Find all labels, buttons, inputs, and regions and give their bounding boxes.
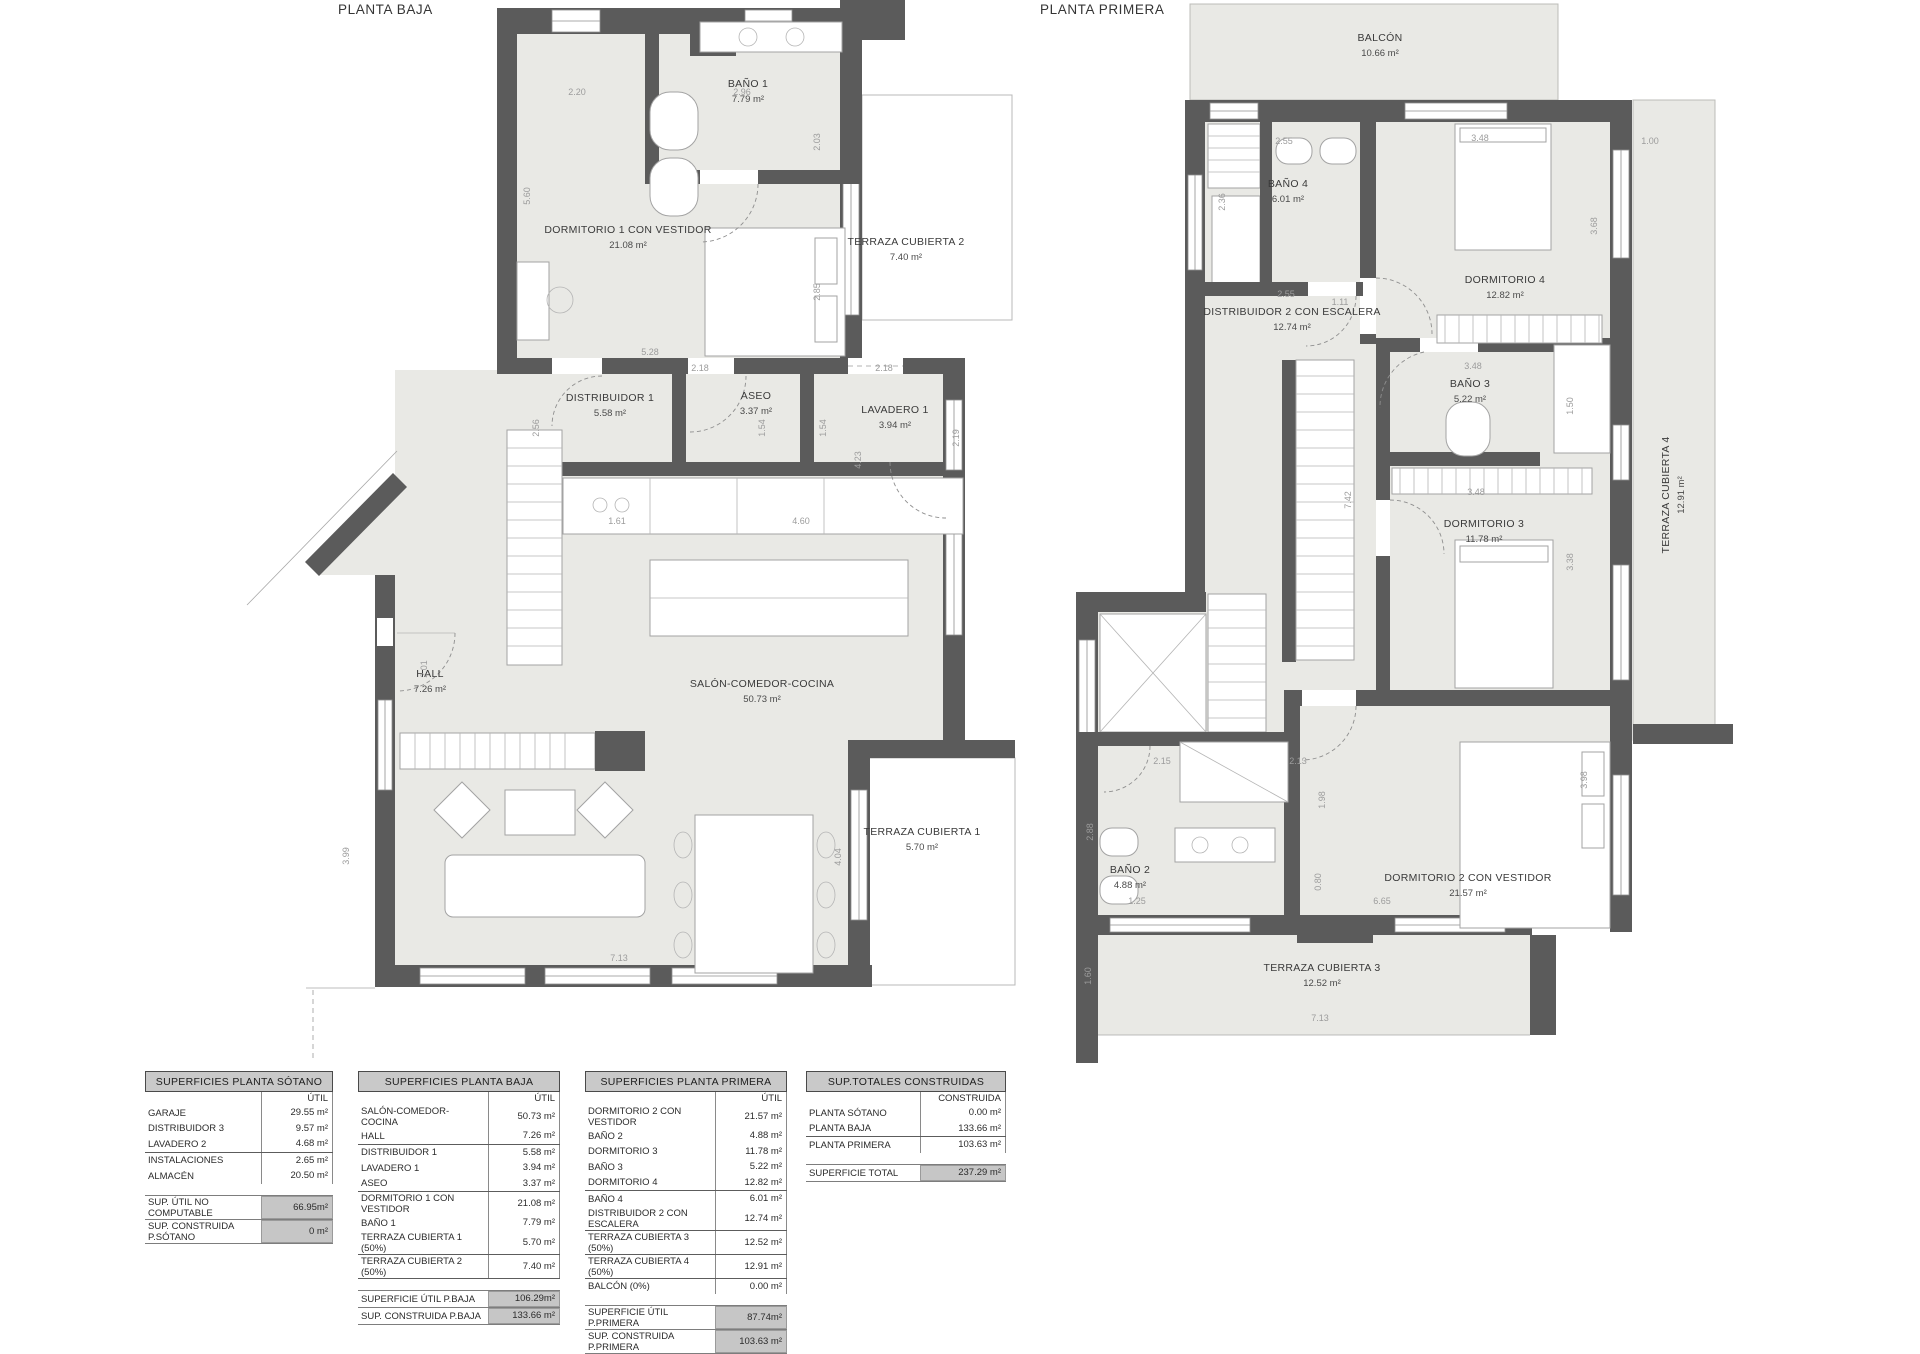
room-area: 21.08 m² (544, 239, 711, 253)
dimension-label: 1.11 (1332, 297, 1349, 307)
room-name: DISTRIBUIDOR 2 CON ESCALERA (1203, 305, 1380, 321)
column-header: ÚTIL (488, 1092, 560, 1105)
table-row: DORMITORIO 1 CON VESTIDOR21.08 m² (358, 1191, 560, 1215)
table-header-row: ÚTIL (145, 1092, 333, 1105)
room-area: 50.73 m² (690, 693, 834, 707)
dimension-label: 2.55 (1275, 136, 1293, 146)
room-name: ASEO (740, 389, 772, 405)
room-label-terraza-cubierta-2: TERRAZA CUBIERTA 27.40 m² (847, 235, 964, 265)
table-row: LAVADERO 24.68 m² (145, 1136, 333, 1152)
room-area: 7.40 m² (847, 251, 964, 265)
room-name: DORMITORIO 2 CON VESTIDOR (1384, 871, 1551, 887)
room-name: SALÓN-COMEDOR-COCINA (690, 677, 834, 693)
room-label-aseo: ASEO3.37 m² (740, 389, 772, 419)
room-name: BAÑO 2 (1110, 863, 1150, 879)
table-total-row: SUP. ÚTIL NO COMPUTABLE66.95m² (145, 1195, 333, 1219)
dimension-label: 2.18 (875, 363, 893, 373)
dimension-label: 4.04 (833, 848, 843, 866)
room-label-bano-4: BAÑO 46.01 m² (1268, 177, 1308, 207)
room-area: 7.26 m² (414, 683, 446, 697)
dimension-label: 7.13 (610, 953, 628, 963)
room-area: 11.78 m² (1444, 533, 1524, 547)
dimension-label: 1.50 (1565, 397, 1575, 415)
table-superficies-planta-baja: SUPERFICIES PLANTA BAJA ÚTIL SALÓN-COMED… (358, 1071, 560, 1325)
dimension-label: 5.28 (641, 347, 659, 357)
room-name: LAVADERO 1 (861, 403, 928, 419)
dimension-label: 2.55 (1277, 289, 1295, 299)
room-label-dormitorio-3: DORMITORIO 311.78 m² (1444, 517, 1524, 547)
dimension-label: 1.54 (818, 419, 828, 437)
table-row: INSTALACIONES2.65 m² (145, 1152, 333, 1169)
room-area: 5.58 m² (566, 407, 654, 421)
room-label-terraza-cubierta-4: TERRAZA CUBIERTA 412.91 m² (1659, 436, 1689, 553)
dimension-label: 4.23 (853, 451, 863, 469)
room-label-lavadero-1: LAVADERO 13.94 m² (861, 403, 928, 433)
floor-plan-baja-drawing (240, 0, 1040, 1068)
column-header: ÚTIL (261, 1092, 333, 1105)
room-area: 12.74 m² (1203, 321, 1380, 335)
room-label-distribuidor-1: DISTRIBUIDOR 15.58 m² (566, 391, 654, 421)
table-total-row: SUP. CONSTRUIDA P.PRIMERA103.63 m² (585, 1329, 787, 1354)
room-name: BALCÓN (1358, 31, 1403, 47)
table-row: BAÑO 24.88 m² (585, 1128, 787, 1144)
room-area: 5.22 m² (1450, 393, 1490, 407)
dimension-label: 2.15 (1153, 756, 1171, 766)
table-superficies-planta-primera: SUPERFICIES PLANTA PRIMERA ÚTIL DORMITOR… (585, 1071, 787, 1354)
dimension-label: 3.68 (1589, 217, 1599, 235)
table-header-row: CONSTRUIDA (806, 1092, 1006, 1105)
room-area: 3.37 m² (740, 405, 772, 419)
room-area: 3.94 m² (861, 419, 928, 433)
dimension-label: 2.36 (1217, 193, 1227, 211)
table-row: PLANTA SÓTANO0.00 m² (806, 1105, 1006, 1121)
dimension-label: 7.42 (1343, 491, 1353, 509)
table-row: PLANTA BAJA133.66 m² (806, 1121, 1006, 1137)
dimension-label: 7.13 (1311, 1013, 1329, 1023)
table-total-row: SUP. CONSTRUIDA P.BAJA133.66 m² (358, 1307, 560, 1325)
table-row: DISTRIBUIDOR 39.57 m² (145, 1121, 333, 1137)
table-row: TERRAZA CUBIERTA 4 (50%)12.91 m² (585, 1254, 787, 1279)
room-name: TERRAZA CUBIERTA 2 (847, 235, 964, 251)
table-superficies-totales: SUP.TOTALES CONSTRUIDAS CONSTRUIDA PLANT… (806, 1071, 1006, 1182)
dimension-label: 1.25 (1128, 896, 1146, 906)
dimension-label: 6.65 (1373, 896, 1391, 906)
room-name: DORMITORIO 1 CON VESTIDOR (544, 223, 711, 239)
table-title: SUPERFICIES PLANTA BAJA (358, 1071, 560, 1092)
table-row: PLANTA PRIMERA103.63 m² (806, 1136, 1006, 1153)
table-total-row: SUPERFICIE ÚTIL P.BAJA106.29m² (358, 1290, 560, 1307)
dimension-label: 2.96 (733, 87, 751, 97)
dimension-label: 1.00 (1641, 136, 1659, 146)
room-area: 6.01 m² (1268, 193, 1308, 207)
floor-plan-sheet: { "titles": { "baja": "PLANTA BAJA", "pr… (0, 0, 1920, 1280)
table-row: LAVADERO 13.94 m² (358, 1160, 560, 1176)
dimension-label: 3.99 (341, 847, 351, 865)
room-name: TERRAZA CUBIERTA 1 (863, 825, 980, 841)
table-row: ASEO3.37 m² (358, 1176, 560, 1192)
table-row: TERRAZA CUBIERTA 2 (50%)7.40 m² (358, 1254, 560, 1279)
room-name: TERRAZA CUBIERTA 3 (1263, 961, 1380, 977)
room-label-salon-comedor-cocina: SALÓN-COMEDOR-COCINA50.73 m² (690, 677, 834, 707)
room-name: BAÑO 3 (1450, 377, 1490, 393)
room-name: DORMITORIO 3 (1444, 517, 1524, 533)
dimension-label: 0.80 (1313, 873, 1323, 891)
room-label-bano-3: BAÑO 35.22 m² (1450, 377, 1490, 407)
table-title: SUPERFICIES PLANTA PRIMERA (585, 1071, 787, 1092)
table-title: SUP.TOTALES CONSTRUIDAS (806, 1071, 1006, 1092)
room-label-dormitorio-2: DORMITORIO 2 CON VESTIDOR21.57 m² (1384, 871, 1551, 901)
dimension-label: 1.98 (1317, 791, 1327, 809)
dimension-label: 2.03 (812, 133, 822, 151)
table-total-row: SUPERFICIE ÚTIL P.PRIMERA87.74m² (585, 1305, 787, 1329)
table-total-row: SUPERFICIE TOTAL237.29 m² (806, 1164, 1006, 1182)
table-header-row: ÚTIL (585, 1092, 787, 1105)
dimension-label: 1.60 (1083, 967, 1093, 985)
table-superficies-planta-sotano: SUPERFICIES PLANTA SÓTANO ÚTIL GARAJE29.… (145, 1071, 333, 1244)
table-row: DORMITORIO 412.82 m² (585, 1175, 787, 1191)
room-label-bano-2: BAÑO 24.88 m² (1110, 863, 1150, 893)
room-area: 5.70 m² (863, 841, 980, 855)
table-row: SALÓN-COMEDOR-COCINA50.73 m² (358, 1105, 560, 1128)
table-row: DORMITORIO 2 CON VESTIDOR21.57 m² (585, 1105, 787, 1128)
dimension-label: 2.56 (531, 419, 541, 437)
room-name: DISTRIBUIDOR 1 (566, 391, 654, 407)
column-header: CONSTRUIDA (920, 1092, 1006, 1105)
dimension-label: 1.54 (757, 419, 767, 437)
table-row: TERRAZA CUBIERTA 3 (50%)12.52 m² (585, 1230, 787, 1254)
room-area: 21.57 m² (1384, 887, 1551, 901)
dimension-label: 1.61 (608, 516, 626, 526)
table-title: SUPERFICIES PLANTA SÓTANO (145, 1071, 333, 1092)
dimension-label: 2.13 (1289, 756, 1307, 766)
room-label-terraza-cubierta-3: TERRAZA CUBIERTA 312.52 m² (1263, 961, 1380, 991)
dimension-label: 2.88 (1085, 823, 1095, 841)
table-row: BAÑO 35.22 m² (585, 1159, 787, 1175)
room-name: DORMITORIO 4 (1465, 273, 1545, 289)
room-area: 4.88 m² (1110, 879, 1150, 893)
table-row: DORMITORIO 311.78 m² (585, 1144, 787, 1160)
table-row: GARAJE29.55 m² (145, 1105, 333, 1121)
table-row: ALMACÉN20.50 m² (145, 1168, 333, 1184)
dimension-label: 2.19 (951, 429, 961, 447)
table-row: HALL7.26 m² (358, 1128, 560, 1144)
room-name: TERRAZA CUBIERTA 4 (1659, 436, 1675, 553)
table-row: BAÑO 46.01 m² (585, 1190, 787, 1207)
column-header: ÚTIL (715, 1092, 787, 1105)
room-label-terraza-cubierta-1: TERRAZA CUBIERTA 15.70 m² (863, 825, 980, 855)
room-area: 12.52 m² (1263, 977, 1380, 991)
room-area: 12.82 m² (1465, 289, 1545, 303)
dimension-label: 5.60 (522, 187, 532, 205)
dimension-label: 3.48 (1471, 133, 1489, 143)
room-label-distribuidor-2: DISTRIBUIDOR 2 CON ESCALERA12.74 m² (1203, 305, 1380, 335)
dimension-label: 3.98 (1579, 771, 1589, 789)
room-label-dormitorio-1: DORMITORIO 1 CON VESTIDOR21.08 m² (544, 223, 711, 253)
table-row: DISTRIBUIDOR 15.58 m² (358, 1144, 560, 1161)
dimension-label: 3.38 (1565, 553, 1575, 571)
table-row: TERRAZA CUBIERTA 1 (50%)5.70 m² (358, 1231, 560, 1254)
table-row: DISTRIBUIDOR 2 CON ESCALERA12.74 m² (585, 1207, 787, 1230)
table-row: BAÑO 17.79 m² (358, 1215, 560, 1231)
room-area: 12.91 m² (1675, 436, 1689, 553)
room-area: 10.66 m² (1358, 47, 1403, 61)
room-label-balcon: BALCÓN10.66 m² (1358, 31, 1403, 61)
dimension-label: 2.01 (419, 660, 429, 678)
table-header-row: ÚTIL (358, 1092, 560, 1105)
dimension-label: 4.60 (792, 516, 810, 526)
dimension-label: 2.85 (812, 283, 822, 301)
dimension-label: 2.18 (691, 363, 709, 373)
table-row: BALCÓN (0%)0.00 m² (585, 1279, 787, 1295)
dimension-label: 2.20 (568, 87, 586, 97)
dimension-label: 3.48 (1464, 361, 1482, 371)
table-total-row: SUP. CONSTRUIDA P.SÓTANO0 m² (145, 1219, 333, 1244)
room-label-dormitorio-4: DORMITORIO 412.82 m² (1465, 273, 1545, 303)
room-name: BAÑO 4 (1268, 177, 1308, 193)
dimension-label: 3.48 (1467, 487, 1485, 497)
